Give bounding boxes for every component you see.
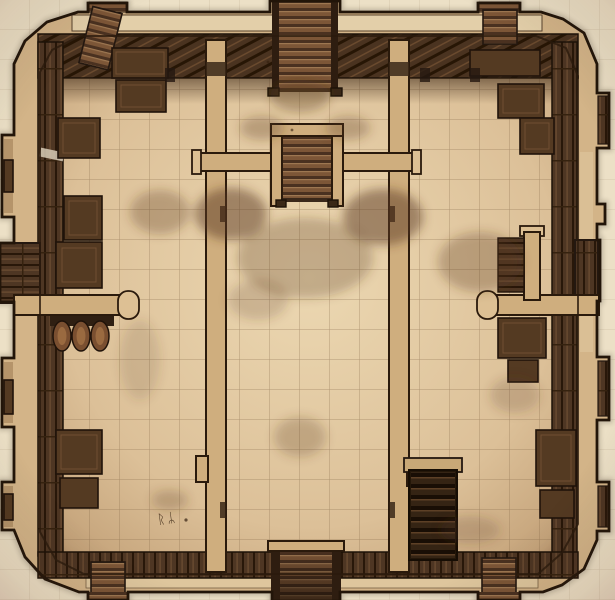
vignette xyxy=(0,0,615,600)
dungeon-map-canvas: ᚱᛦ xyxy=(0,0,615,600)
dungeon-map: ᚱᛦ xyxy=(0,0,615,600)
